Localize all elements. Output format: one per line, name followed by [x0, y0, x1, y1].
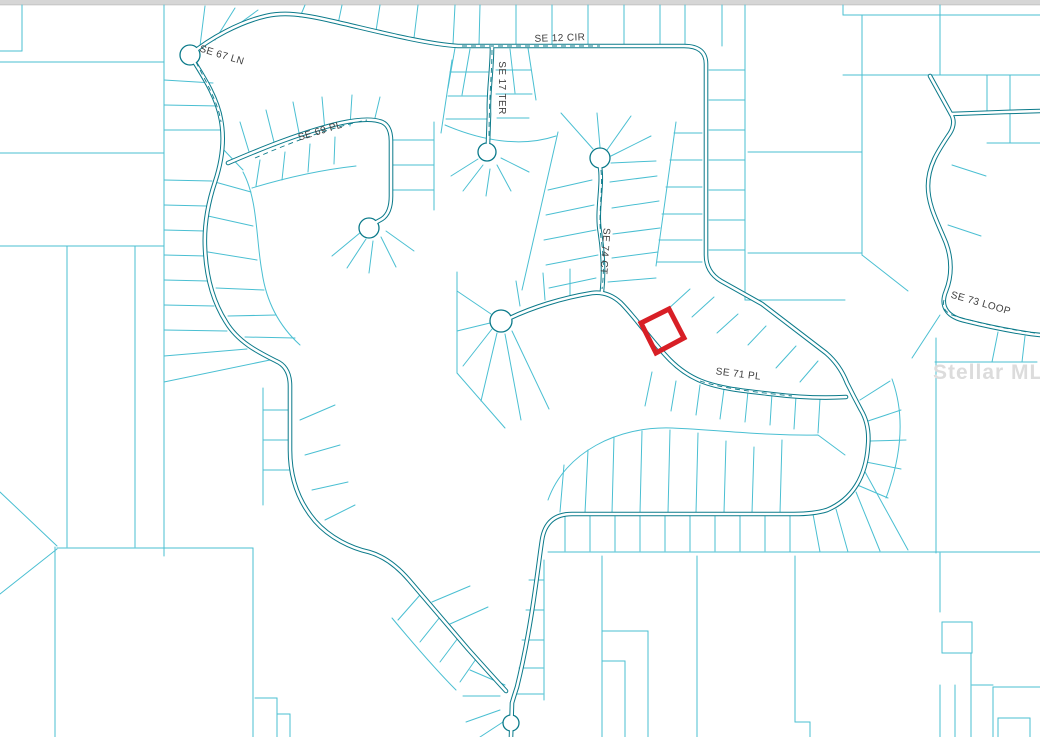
map-background: [0, 0, 1040, 737]
parcel-map-svg: Stellar MLS SE 12 CIR SE 67 LN SE 69 PL …: [0, 0, 1040, 737]
culdesac-bulb-center: [490, 310, 512, 332]
window-edge-line: [0, 5, 1040, 6]
street-label-se-17-ter: SE 17 TER: [496, 61, 507, 114]
window-edge-bar: [0, 0, 1040, 5]
culdesac-bulb-se74ct: [590, 148, 610, 168]
street-label-se-12-cir: SE 12 CIR: [534, 32, 585, 45]
culdesac-bulb-se17ter: [478, 143, 496, 161]
watermark-text: Stellar MLS: [933, 361, 1040, 384]
map-canvas: Stellar MLS SE 12 CIR SE 67 LN SE 69 PL …: [0, 0, 1040, 737]
